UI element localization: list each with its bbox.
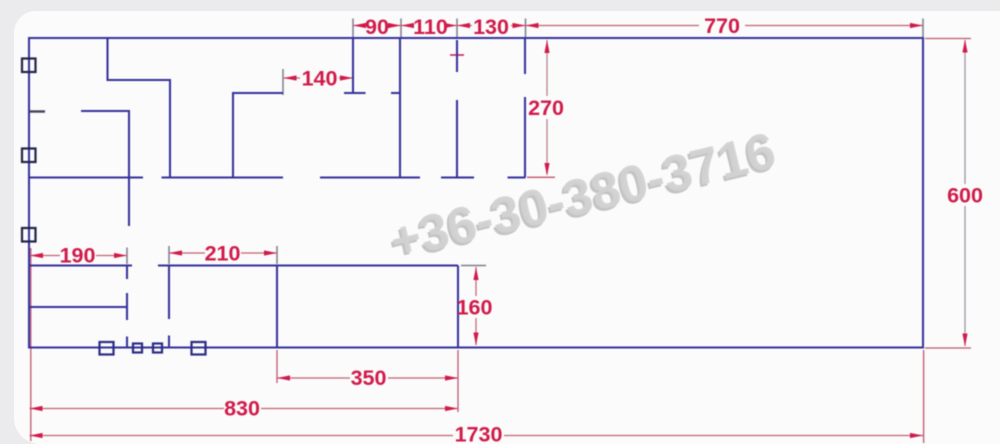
svg-text:350: 350 bbox=[351, 366, 387, 390]
svg-text:130: 130 bbox=[473, 15, 509, 39]
svg-text:600: 600 bbox=[947, 184, 983, 208]
svg-text:90: 90 bbox=[365, 15, 389, 39]
svg-text:160: 160 bbox=[457, 296, 493, 320]
svg-text:1730: 1730 bbox=[455, 423, 503, 444]
svg-text:210: 210 bbox=[205, 242, 241, 266]
svg-text:770: 770 bbox=[704, 14, 740, 38]
svg-text:830: 830 bbox=[224, 397, 260, 421]
svg-text:110: 110 bbox=[413, 15, 448, 39]
svg-text:+36-30-380-3716: +36-30-380-3716 bbox=[384, 121, 780, 270]
svg-text:190: 190 bbox=[60, 244, 96, 268]
svg-text:140: 140 bbox=[302, 67, 338, 91]
svg-text:270: 270 bbox=[528, 96, 564, 120]
